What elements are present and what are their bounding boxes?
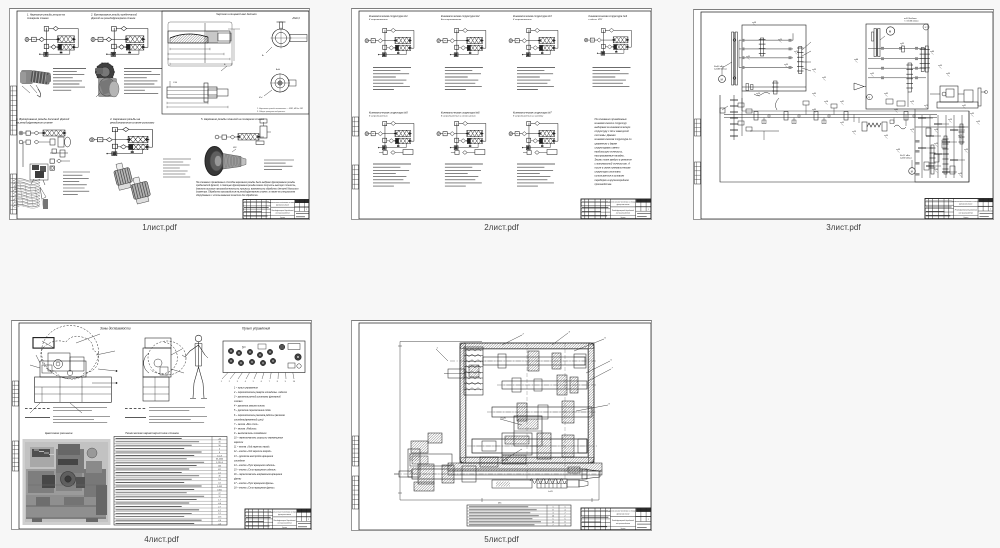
svg-text:шпиндель/временной цикл): шпиндель/временной цикл) (234, 418, 264, 421)
svg-text:фрезы: фрезы (234, 478, 242, 481)
svg-text:гребенчатой фрезой, с помощью: гребенчатой фрезой, с помощью фрезерован… (196, 184, 296, 187)
svg-text:1,5–8: 1,5–8 (217, 455, 222, 457)
svg-text:6: 6 (261, 381, 262, 383)
svg-text:4,7: 4,7 (218, 510, 221, 512)
svg-text:63–4000: 63–4000 (216, 459, 223, 461)
svg-text:2 – переключатель реверса шпин: 2 – переключатель реверса шпиндельн. изд… (233, 391, 288, 394)
svg-text:40: 40 (218, 476, 220, 478)
svg-text:Технологическая подготовка на: Технологическая подготовка на токарно- (270, 510, 299, 513)
svg-text:К сопротивлению со связями: К сопротивлению со связями (513, 116, 544, 118)
svg-text:на резьбофрезерном станке: на резьбофрезерном станке (16, 120, 53, 124)
svg-text:§O: §O (242, 345, 245, 349)
svg-text:головки: головки (234, 401, 243, 403)
svg-text:-2,6: -2,6 (218, 520, 221, 522)
svg-text:7: 7 (565, 513, 566, 515)
svg-text:сравнению с двумя: сравнению с двумя (595, 142, 618, 145)
svg-text:8: 8 (553, 510, 554, 512)
svg-text:Технологическая подготовка на: Технологическая подготовка на токарно- (609, 200, 638, 203)
svg-text:Кинематическая структура №6: Кинематическая структура №6 (441, 112, 480, 115)
svg-text:15 – кнопка «Стоп вращения изд: 15 – кнопка «Стоп вращения изделия» (234, 468, 277, 471)
svg-text:токарном станке: токарном станке (27, 17, 49, 20)
svg-text:Чертил: Чертил (621, 528, 626, 530)
svg-text:10: 10 (293, 381, 295, 383)
svg-text:фрезерном станке: фрезерном станке (617, 203, 630, 206)
svg-text:1,75: 1,75 (218, 517, 222, 519)
svg-text:√Ra6,3: √Ra6,3 (292, 17, 300, 20)
svg-text:оборудовании с использованием: оборудовании с использованием оснастки д… (196, 194, 259, 197)
svg-text:1: 1 (221, 381, 222, 383)
svg-text:1 – пульт управления: 1 – пульт управления (234, 388, 258, 390)
svg-text:довольно высокую производитель: довольно высокую производительность проц… (196, 187, 299, 190)
svg-text:Б: Б (224, 64, 226, 66)
svg-text:М: М (911, 170, 913, 173)
svg-text:2,2: 2,2 (218, 472, 221, 474)
svg-text:ход приспособления: ход приспособления (615, 522, 630, 525)
svg-text:Зоны досягаемости: Зоны досягаемости (100, 327, 131, 331)
svg-text:ход приспособления: ход приспособления (958, 211, 973, 214)
svg-text:2: 2 (229, 381, 230, 383)
svg-text:1: 1 (648, 209, 649, 211)
svg-text:12: 12 (552, 522, 554, 524)
svg-text:5: 5 (611, 360, 613, 362)
svg-text:z=44: z=44 (853, 58, 858, 61)
svg-text:8: 8 (219, 452, 220, 454)
svg-text:с минимальной точностью. А: с минимальной точностью. А (595, 163, 631, 166)
svg-text:Технологическая подготовка на: Технологическая подготовка на токарно- (268, 201, 297, 204)
svg-text:А: А (262, 54, 264, 57)
svg-text:3: 3 (553, 513, 554, 515)
svg-text:-0,6: -0,6 (218, 503, 221, 505)
svg-text:2,7: 2,7 (218, 506, 221, 508)
svg-text:5: 5 (565, 519, 566, 521)
svg-text:Кинематическая структура №4: Кинематическая структура №4 (589, 15, 628, 18)
svg-text:фрезерном станке: фрезерном станке (617, 513, 630, 516)
svg-text:4: 4 (569, 331, 571, 334)
svg-text:L=29: L=29 (548, 491, 553, 493)
svg-text:8: 8 (565, 522, 566, 524)
svg-text:1,7: 1,7 (218, 500, 221, 502)
svg-text:производстве.: производстве. (595, 183, 613, 186)
svg-text:Ц: Ц (868, 97, 870, 99)
svg-text:Технологическая подготовка на: Технологическая подготовка на токарно- (609, 510, 638, 513)
svg-text:5,6: 5,6 (218, 479, 221, 481)
svg-text:z=24: z=24 (823, 100, 828, 103)
svg-text:10 – переключатель скорости пе: 10 – переключатель скорости перемещения (234, 438, 284, 440)
svg-text:n=1440 об/мин: n=1440 об/мин (714, 67, 727, 70)
svg-text:100: 100 (218, 466, 221, 468)
svg-text:13 – рукоятка настройки вращен: 13 – рукоятка настройки вращения (234, 455, 274, 458)
svg-text:Кинематическая структура №3: Кинематическая структура №3 (513, 15, 552, 18)
svg-text:6 – переключатель режимов рабо: 6 – переключатель режимов работы (включа… (234, 415, 286, 417)
svg-text:структуру с Эти замкнутой: структуру с Эти замкнутой (595, 130, 630, 133)
svg-text:ход приспособления: ход приспособления (276, 522, 291, 525)
svg-text:ход приспособления: ход приспособления (274, 212, 289, 215)
svg-text:фрезерном станке: фрезерном станке (959, 202, 972, 205)
svg-text:∅40: ∅40 (173, 81, 178, 84)
svg-text:резьбонакатном станке роликами: резьбонакатном станке роликами (109, 120, 155, 124)
svg-text:N=4,5 кВт: N=4,5 кВт (714, 65, 724, 68)
svg-text:М20: М20 (233, 147, 237, 149)
svg-text:3: 3 (237, 381, 238, 383)
svg-text:4: 4 (219, 449, 220, 451)
svg-text:К сопротивлению: К сопротивлению (513, 19, 532, 21)
svg-text:1. Нарезание резьбы выполнять: 1. Нарезание резьбы выполнять — М30, НВ … (257, 107, 304, 110)
svg-text:27: 27 (218, 493, 220, 495)
svg-text:фрезой на резьбофрезерном стан: фрезой на резьбофрезерном станке (91, 16, 136, 20)
svg-text:12 – кнопка «Ход каретки впере: 12 – кнопка «Ход каретки вперед» (234, 450, 272, 453)
svg-text:структура изготовки: структура изготовки (595, 171, 622, 174)
svg-text:z=45: z=45 (893, 108, 898, 111)
svg-text:Без сопротивления: Без сопротивления (441, 19, 462, 21)
svg-text:4: 4 (565, 510, 566, 512)
svg-text:3 – рукоятка ручной установки: 3 – рукоятка ручной установки фрезерной (234, 396, 281, 399)
svg-text:1: 1 (648, 519, 649, 521)
svg-text:2: 2 (522, 334, 525, 336)
svg-text:3. Фрезерование резьбы дисково: 3. Фрезерование резьбы дисковой фрезой (16, 117, 70, 121)
svg-text:485: 485 (498, 503, 502, 505)
svg-text:К сопротивлению с одной связью: К сопротивлению с одной связью (441, 115, 476, 118)
svg-text:диаметра. Обработка производит: диаметра. Обработка производится на резь… (196, 191, 295, 194)
svg-text:7: 7 (612, 368, 614, 370)
svg-text:1: 1 (437, 348, 439, 350)
svg-text:наибольшую точность,: наибольшую точность, (595, 150, 624, 153)
svg-text:Ø d: Ø d (258, 97, 263, 99)
svg-text:используется в условиях: используется в условиях (595, 175, 625, 178)
svg-text:7 – кнопка «Все стоп»: 7 – кнопка «Все стоп» (234, 424, 259, 426)
svg-text:4. Нарезание резьбы на: 4. Нарезание резьбы на (110, 117, 141, 121)
svg-text:2. Общие припуски выдержать.: 2. Общие припуски выдержать. (256, 110, 286, 113)
svg-text:каретки: каретки (234, 442, 244, 444)
svg-text:1: 1 (306, 209, 307, 211)
svg-text:6: 6 (605, 338, 607, 340)
svg-text:Резьбофрезерный барабанный: Резьбофрезерный барабанный (955, 208, 977, 211)
svg-text:9 – выключатель охлаждения: 9 – выключатель охлаждения (234, 432, 267, 435)
svg-text:1: 1 (308, 519, 309, 521)
svg-text:10: 10 (552, 516, 554, 518)
svg-text:8: 8 (277, 381, 278, 383)
svg-text:3: 3 (565, 525, 566, 527)
svg-text:8: 8 (609, 404, 611, 406)
svg-text:7: 7 (553, 525, 554, 527)
svg-text:5. Нарезание резьбы плашкой на: 5. Нарезание резьбы плашкой на токарном … (201, 117, 265, 121)
svg-text:50: 50 (218, 445, 220, 447)
svg-text:0,105: 0,105 (217, 489, 222, 491)
svg-text:5 – рукоятка переключения пода: 5 – рукоятка переключения подач (234, 409, 272, 412)
svg-text:структурами имеет: структурами имеет (595, 146, 620, 149)
svg-text:1: 1 (990, 208, 991, 210)
svg-text:настраиваемые наладки.: настраиваемые наладки. (595, 154, 625, 157)
svg-text:-1,5: -1,5 (218, 523, 221, 525)
svg-text:18 – кнопка «Стоп вращения фре: 18 – кнопка «Стоп вращения фрезы» (234, 487, 276, 490)
svg-text:Чертил: Чертил (280, 217, 285, 219)
svg-text:к обычн. ЧПУ: к обычн. ЧПУ (589, 19, 603, 21)
svg-text:М: М (889, 29, 892, 33)
svg-text:А-А: А-А (276, 68, 280, 71)
svg-text:9: 9 (285, 381, 286, 383)
svg-text:Экими тоже уведут в ремонте: Экими тоже уведут в ремонте (595, 159, 633, 162)
svg-text:Чертил: Чертил (963, 216, 968, 218)
svg-text:Техническая характеристика ста: Техническая характеристика станка (125, 431, 179, 435)
svg-text:К сопротивлению: К сопротивлению (369, 116, 388, 118)
svg-text:+50: +50 (218, 438, 221, 440)
svg-text:m=34: m=34 (503, 459, 509, 462)
svg-text:М: М (721, 77, 723, 81)
svg-text:Кинематическая структура №1: Кинематическая структура №1 (369, 15, 408, 18)
svg-text:после в июня кинематическая: после в июня кинематическая (595, 167, 632, 170)
svg-text:16: 16 (218, 442, 220, 444)
svg-text:IV: IV (925, 27, 927, 29)
svg-text:14 – кнопка «Пуск вращения изд: 14 – кнопка «Пуск вращения изделия» (234, 464, 276, 467)
svg-text:5,235–8: 5,235–8 (216, 462, 223, 464)
svg-text:выбираем за кинематическую: выбираем за кинематическую (595, 126, 631, 129)
svg-text:переборки в крупносерийном: переборки в крупносерийном (595, 179, 629, 182)
svg-text:12: 12 (218, 496, 220, 498)
svg-text:К сопротивлению: К сопротивлению (369, 19, 388, 21)
svg-text:4 – рукоятка зажима пиноли: 4 – рукоятка зажима пиноли (234, 405, 266, 408)
svg-text:Чертеж шлицевой вал детали: Чертеж шлицевой вал детали (216, 12, 257, 16)
svg-text:11 – кнопка «Ход каретки назад: 11 – кнопка «Ход каретки назад» (234, 446, 271, 449)
svg-text:4: 4 (245, 381, 246, 383)
svg-text:2,2: 2,2 (218, 513, 221, 515)
svg-text:z=46: z=46 (929, 50, 934, 53)
svg-text:2: 2 (565, 516, 566, 518)
svg-text:1: 1 (553, 507, 554, 509)
svg-text:Цветовое решение: Цветовое решение (45, 431, 73, 435)
svg-text:На основании приведенных: На основании приведенных (595, 118, 628, 121)
svg-text:Пульт управления: Пульт управления (242, 327, 270, 331)
svg-text:Технологическая подготовка на: Технологическая подготовка на токарно- (951, 199, 980, 202)
svg-text:системы. Данная: системы. Данная (595, 134, 617, 137)
svg-text:На основании приведенных спосо: На основании приведенных способов нареза… (196, 181, 295, 184)
svg-text:7: 7 (269, 381, 270, 383)
svg-text:Чертил: Чертил (621, 217, 626, 219)
svg-text:Резьбофрезерный барабанный: Резьбофрезерный барабанный (274, 519, 296, 522)
svg-text:m=41: m=41 (501, 417, 507, 420)
svg-text:4/2: 4/2 (218, 469, 221, 471)
svg-text:Кинематическая структура №5: Кинематическая структура №5 (369, 112, 408, 115)
svg-text:Резьбофрезерный барабанный: Резьбофрезерный барабанный (612, 519, 634, 522)
svg-text:5: 5 (253, 381, 254, 383)
svg-text:Резьбофрезерный барабанный: Резьбофрезерный барабанный (612, 209, 634, 212)
svg-text:5: 5 (553, 519, 554, 521)
svg-text:2–352: 2–352 (217, 486, 222, 488)
svg-text:17 – кнопка «Пуск вращения фре: 17 – кнопка «Пуск вращения фрезы» (234, 482, 275, 485)
svg-text:16 – переключатель направления: 16 – переключатель направления вращения (234, 474, 283, 476)
svg-text:0,2: 0,2 (218, 483, 221, 485)
svg-text:Чертил: Чертил (282, 527, 287, 529)
svg-text:1: 1 (565, 507, 566, 509)
svg-text:8 – кнопка «Работа»: 8 – кнопка «Работа» (234, 428, 258, 430)
svg-text:кинематическая структура по: кинематическая структура по (595, 138, 633, 141)
svg-text:n=930 об/мин: n=930 об/мин (900, 157, 912, 159)
svg-text:кинематических структур: кинематических структур (595, 122, 628, 125)
svg-text:× n 18,06 об/мин: × n 18,06 об/мин (904, 19, 919, 22)
svg-text:шпинделя: шпинделя (234, 459, 245, 462)
svg-text:ход приспособления: ход приспособления (615, 212, 630, 215)
svg-text:Кинематическая структура №7: Кинематическая структура №7 (513, 112, 552, 115)
svg-text:Резьбофрезерный барабанный: Резьбофрезерный барабанный (272, 209, 294, 212)
svg-text:Кинематическая структура №2: Кинематическая структура №2 (441, 15, 480, 18)
